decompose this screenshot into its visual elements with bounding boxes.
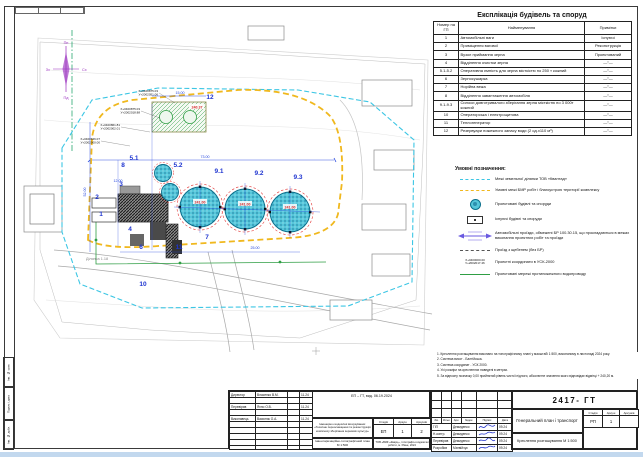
survey-signature-table: ДиректорВласенко В.М.11.24 ПеревіривЯхно… [229, 391, 313, 450]
survey-ref-note: ЕП – ГТ, вид. 06.19.2024 [312, 391, 431, 418]
legend-title: Умовні позначення: [455, 166, 637, 172]
explication-table: Номер на ГП Найменування Примітки 1Автом… [433, 21, 632, 136]
frame-left-margin-line [14, 6, 15, 449]
col-header-num: Номер на ГП [434, 22, 459, 35]
fire-water-symbol [460, 274, 490, 275]
col-header-notes: Примітки [585, 22, 632, 35]
explication-title: Експлікація будівель та споруд [433, 12, 631, 19]
table-row: 10Операторська і електрощитова—″— [434, 111, 632, 119]
legend-panel: Умовні позначення: Межі земельної ділянк… [455, 166, 637, 283]
table-row: 9.1-9.3Силоси довготривалого зберігання … [434, 100, 632, 111]
gravel-road-symbol [460, 250, 490, 251]
table-row: 11Теплогенератор—″— [434, 119, 632, 127]
designed-building-symbol [470, 199, 481, 210]
side-stamp-cell: Інв. № ориг. [3, 357, 14, 387]
drawing-subtitle: Креслення розташування М 1:500 [511, 433, 583, 450]
legend-item: Проїзд з щебенем (без БР) [455, 248, 637, 253]
page-edge-strip [0, 452, 643, 457]
existing-building-symbol [467, 216, 483, 224]
table-row: 8Відділення завантаження автомобіля—″— [434, 92, 632, 100]
explication-panel: Експлікація будівель та споруд Номер на … [433, 12, 631, 136]
main-stage-stamp: СтадіяАркушАркушів РП1 [583, 409, 639, 428]
works-boundary-symbol [460, 190, 490, 191]
survey-description: Інженерно-геодезичні вишукування: «Техні… [312, 418, 373, 438]
table-row: 1Автомобільні вагиІснуючі [434, 35, 632, 43]
table-header-row: Номер на ГП Найменування Примітки [434, 22, 632, 35]
signature-cell [477, 430, 498, 437]
table-row: 12Резервуари пожежного запасу води (2 од… [434, 128, 632, 136]
survey-company: ТОВ «ВКФ «Кварц», топографо-геодезичні р… [373, 438, 431, 450]
signature-cell [477, 423, 498, 430]
legend-item: Х+0400000.00 У+2002017.46 Проектні коорд… [455, 259, 637, 266]
drawing-sheet: Пн Пд Зх Сх 240.37 241.00 241.00 241.00 … [0, 0, 643, 452]
corner-grid [15, 7, 85, 14]
title-block-survey: ДиректорВласенко В.М.11.24 ПеревіривЯхно… [228, 390, 430, 449]
road-arrow-symbol [458, 230, 492, 242]
land-boundary-symbol [460, 179, 490, 180]
col-header-name: Найменування [459, 22, 585, 35]
table-row: 7Норійна вежа—″— [434, 84, 632, 92]
table-row: 4Відділення очистки зерна—″— [434, 59, 632, 67]
note-line: 5. За відносну позначку 0,00 прийнятий р… [437, 374, 639, 379]
side-stamp-cell: Підпис і дата [3, 387, 14, 420]
side-stamp-cell: Інв. № дубл. [3, 420, 14, 450]
signature-cell [477, 437, 498, 444]
legend-item: Проектовані мережі протипожежного водопр… [455, 272, 637, 277]
coords-symbol: Х+0400000.00 У+2002017.46 [465, 259, 485, 266]
signature-cell [477, 444, 498, 451]
legend-item: Умовні межі БМР робіт і благоустрою тери… [455, 188, 637, 193]
survey-stage-stamp: СтадіяАркушАркушів ЕП12 [373, 418, 432, 438]
main-signature-table: Зм. Кільк. Арк. №док. Підпис Дата ГІП Де… [431, 391, 513, 452]
legend-item: Автомобільні проїзди, обмежені БР 100.30… [455, 230, 637, 242]
table-row: 6Зерносушарка—″— [434, 75, 632, 83]
document-number: 2417- ГТ [511, 391, 638, 409]
drawing-title: Генеральний план і транспорт [511, 409, 583, 433]
legend-item: Існуючі будівлі та споруди [455, 216, 637, 224]
legend-item: Проектовані будівлі та споруди [455, 199, 637, 210]
notes-block: 1. Креслення розташування виконано на то… [437, 352, 639, 379]
table-row: 3Вузол приймання зернаПроектований [434, 51, 632, 59]
legend-item: Межі земельної ділянки ТОВ «Квантад» [455, 177, 637, 182]
side-stamp: Інв. № ориг. Підпис і дата Інв. № дубл. [3, 357, 14, 450]
table-row: 5.1-5.2Оперативна ємність для зерна міст… [434, 67, 632, 75]
table-row: 2Приміщення ваговоїРеконструкція [434, 43, 632, 51]
title-block-main: Зм. Кільк. Арк. №док. Підпис Дата ГІП Де… [430, 390, 637, 449]
survey-subtitle: Інвентаризаційно-топографічний план М 1:… [312, 438, 373, 450]
company-cell [583, 427, 638, 450]
